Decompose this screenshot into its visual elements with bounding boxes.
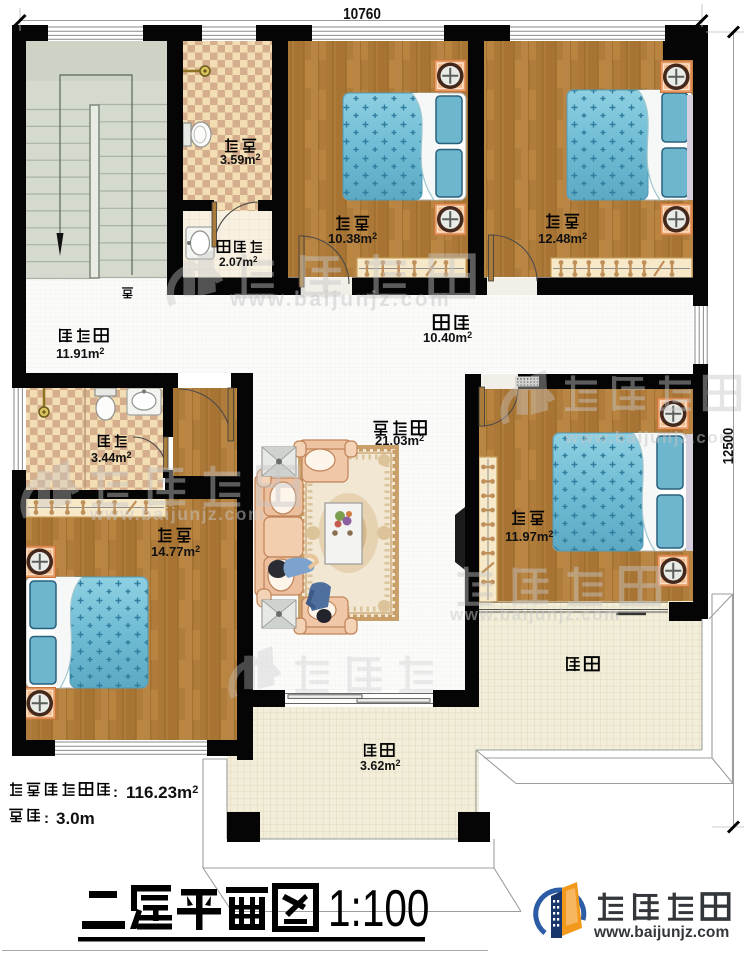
svg-text:1:100: 1:100 (328, 879, 429, 937)
svg-text:10.38m2: 10.38m2 (328, 231, 377, 246)
svg-text:3.59m2: 3.59m2 (220, 152, 260, 167)
svg-text:12500: 12500 (719, 428, 736, 465)
svg-text:10.40m2: 10.40m2 (423, 330, 472, 345)
svg-text:3.62m2: 3.62m2 (360, 758, 400, 773)
svg-text:www.baijunjz.com: www.baijunjz.com (229, 288, 451, 311)
svg-text:www.baijunjz.com: www.baijunjz.com (593, 924, 729, 941)
svg-text::: : (113, 784, 118, 801)
svg-text:10760: 10760 (343, 6, 381, 23)
svg-text:www.baijunjz.com: www.baijunjz.com (89, 504, 265, 524)
svg-text:3.44m2: 3.44m2 (91, 450, 131, 465)
svg-text::: : (44, 810, 49, 827)
svg-text:3.0m: 3.0m (56, 809, 95, 828)
svg-text:12.48m2: 12.48m2 (538, 231, 587, 246)
svg-text:14.77m2: 14.77m2 (151, 544, 200, 559)
svg-text:21.03m2: 21.03m2 (375, 433, 424, 448)
svg-text:www.baijunjz.com: www.baijunjz.com (449, 605, 621, 624)
svg-text:www.baijunjz.com: www.baijunjz.com (564, 428, 736, 447)
svg-text:116.23m2: 116.23m2 (126, 783, 198, 802)
svg-text:11.97m2: 11.97m2 (505, 529, 553, 544)
svg-text:11.91m2: 11.91m2 (56, 346, 104, 361)
svg-text:2.07m2: 2.07m2 (219, 255, 258, 269)
